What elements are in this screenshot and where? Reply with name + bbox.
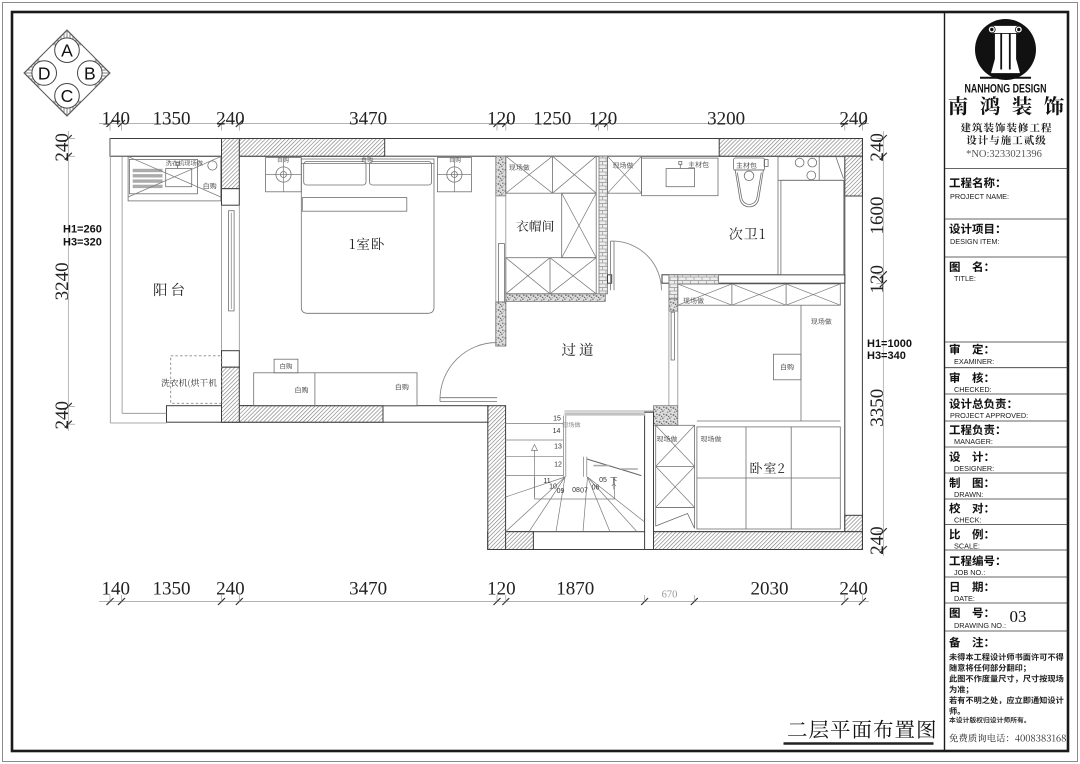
svg-text:06: 06 <box>592 485 600 492</box>
svg-text:240: 240 <box>839 579 868 600</box>
svg-text:MANAGER:: MANAGER: <box>954 437 993 446</box>
svg-text:PROJECT APPROVED:: PROJECT APPROVED: <box>950 411 1028 420</box>
svg-text:1350: 1350 <box>153 579 191 600</box>
svg-text:240: 240 <box>216 579 245 600</box>
svg-text:120: 120 <box>867 265 888 294</box>
svg-text:140: 140 <box>102 579 131 600</box>
svg-text:1600: 1600 <box>867 197 888 235</box>
svg-text:1250: 1250 <box>533 109 571 130</box>
svg-text:140: 140 <box>102 109 131 130</box>
svg-text:DRAWN:: DRAWN: <box>954 490 983 499</box>
svg-text:3200: 3200 <box>707 109 745 130</box>
svg-text:05: 05 <box>599 477 607 484</box>
svg-text:H1=1000: H1=1000 <box>867 338 912 350</box>
svg-text:3470: 3470 <box>349 109 387 130</box>
svg-text:3470: 3470 <box>349 579 387 600</box>
svg-text:NANHONG DESIGN: NANHONG DESIGN <box>965 84 1047 96</box>
svg-text:120: 120 <box>589 109 618 130</box>
svg-text:DRAWING NO.:: DRAWING NO.: <box>954 621 1006 630</box>
svg-text:15: 15 <box>553 416 561 423</box>
svg-text:3350: 3350 <box>867 389 888 427</box>
svg-text:14: 14 <box>553 428 561 435</box>
svg-text:240: 240 <box>867 133 888 162</box>
svg-text:240: 240 <box>867 526 888 555</box>
svg-text:1350: 1350 <box>153 109 191 130</box>
svg-text:H1=260: H1=260 <box>63 224 102 236</box>
svg-text:120: 120 <box>487 579 516 600</box>
svg-text:08: 08 <box>572 487 580 494</box>
svg-text:13: 13 <box>554 444 562 451</box>
svg-text:07: 07 <box>580 488 588 495</box>
svg-text:CHECK:: CHECK: <box>954 516 982 525</box>
svg-text:DESIGN ITEM:: DESIGN ITEM: <box>950 237 999 246</box>
svg-text:H3=340: H3=340 <box>867 350 906 362</box>
svg-text:TITLE:: TITLE: <box>954 274 976 283</box>
svg-text:240: 240 <box>216 109 245 130</box>
svg-text:C: C <box>61 86 74 106</box>
svg-text:670: 670 <box>662 590 678 601</box>
svg-text:PROJECT NAME:: PROJECT NAME: <box>950 192 1009 201</box>
svg-text:DATE:: DATE: <box>954 594 975 603</box>
svg-text:240: 240 <box>839 109 868 130</box>
svg-text:SCALE:: SCALE: <box>954 542 980 551</box>
svg-text:*NO:3233021396: *NO:3233021396 <box>966 149 1042 160</box>
svg-text:D: D <box>38 63 51 83</box>
svg-text:3240: 3240 <box>52 262 73 300</box>
svg-text:A: A <box>61 41 73 61</box>
svg-text:03: 03 <box>1010 607 1027 626</box>
svg-text:DESIGNER:: DESIGNER: <box>954 464 994 473</box>
svg-text:240: 240 <box>52 401 73 430</box>
svg-text:120: 120 <box>487 109 516 130</box>
svg-text:H3=320: H3=320 <box>63 237 102 249</box>
svg-text:EXAMINER:: EXAMINER: <box>954 357 994 366</box>
svg-text:240: 240 <box>52 133 73 162</box>
svg-text:12: 12 <box>554 461 562 468</box>
svg-text:CHECKED:: CHECKED: <box>954 385 992 394</box>
svg-text:2030: 2030 <box>751 579 789 600</box>
svg-text:B: B <box>84 63 96 83</box>
svg-text:JOB NO.:: JOB NO.: <box>954 568 985 577</box>
svg-text:09: 09 <box>557 488 565 495</box>
svg-text:1870: 1870 <box>556 579 594 600</box>
